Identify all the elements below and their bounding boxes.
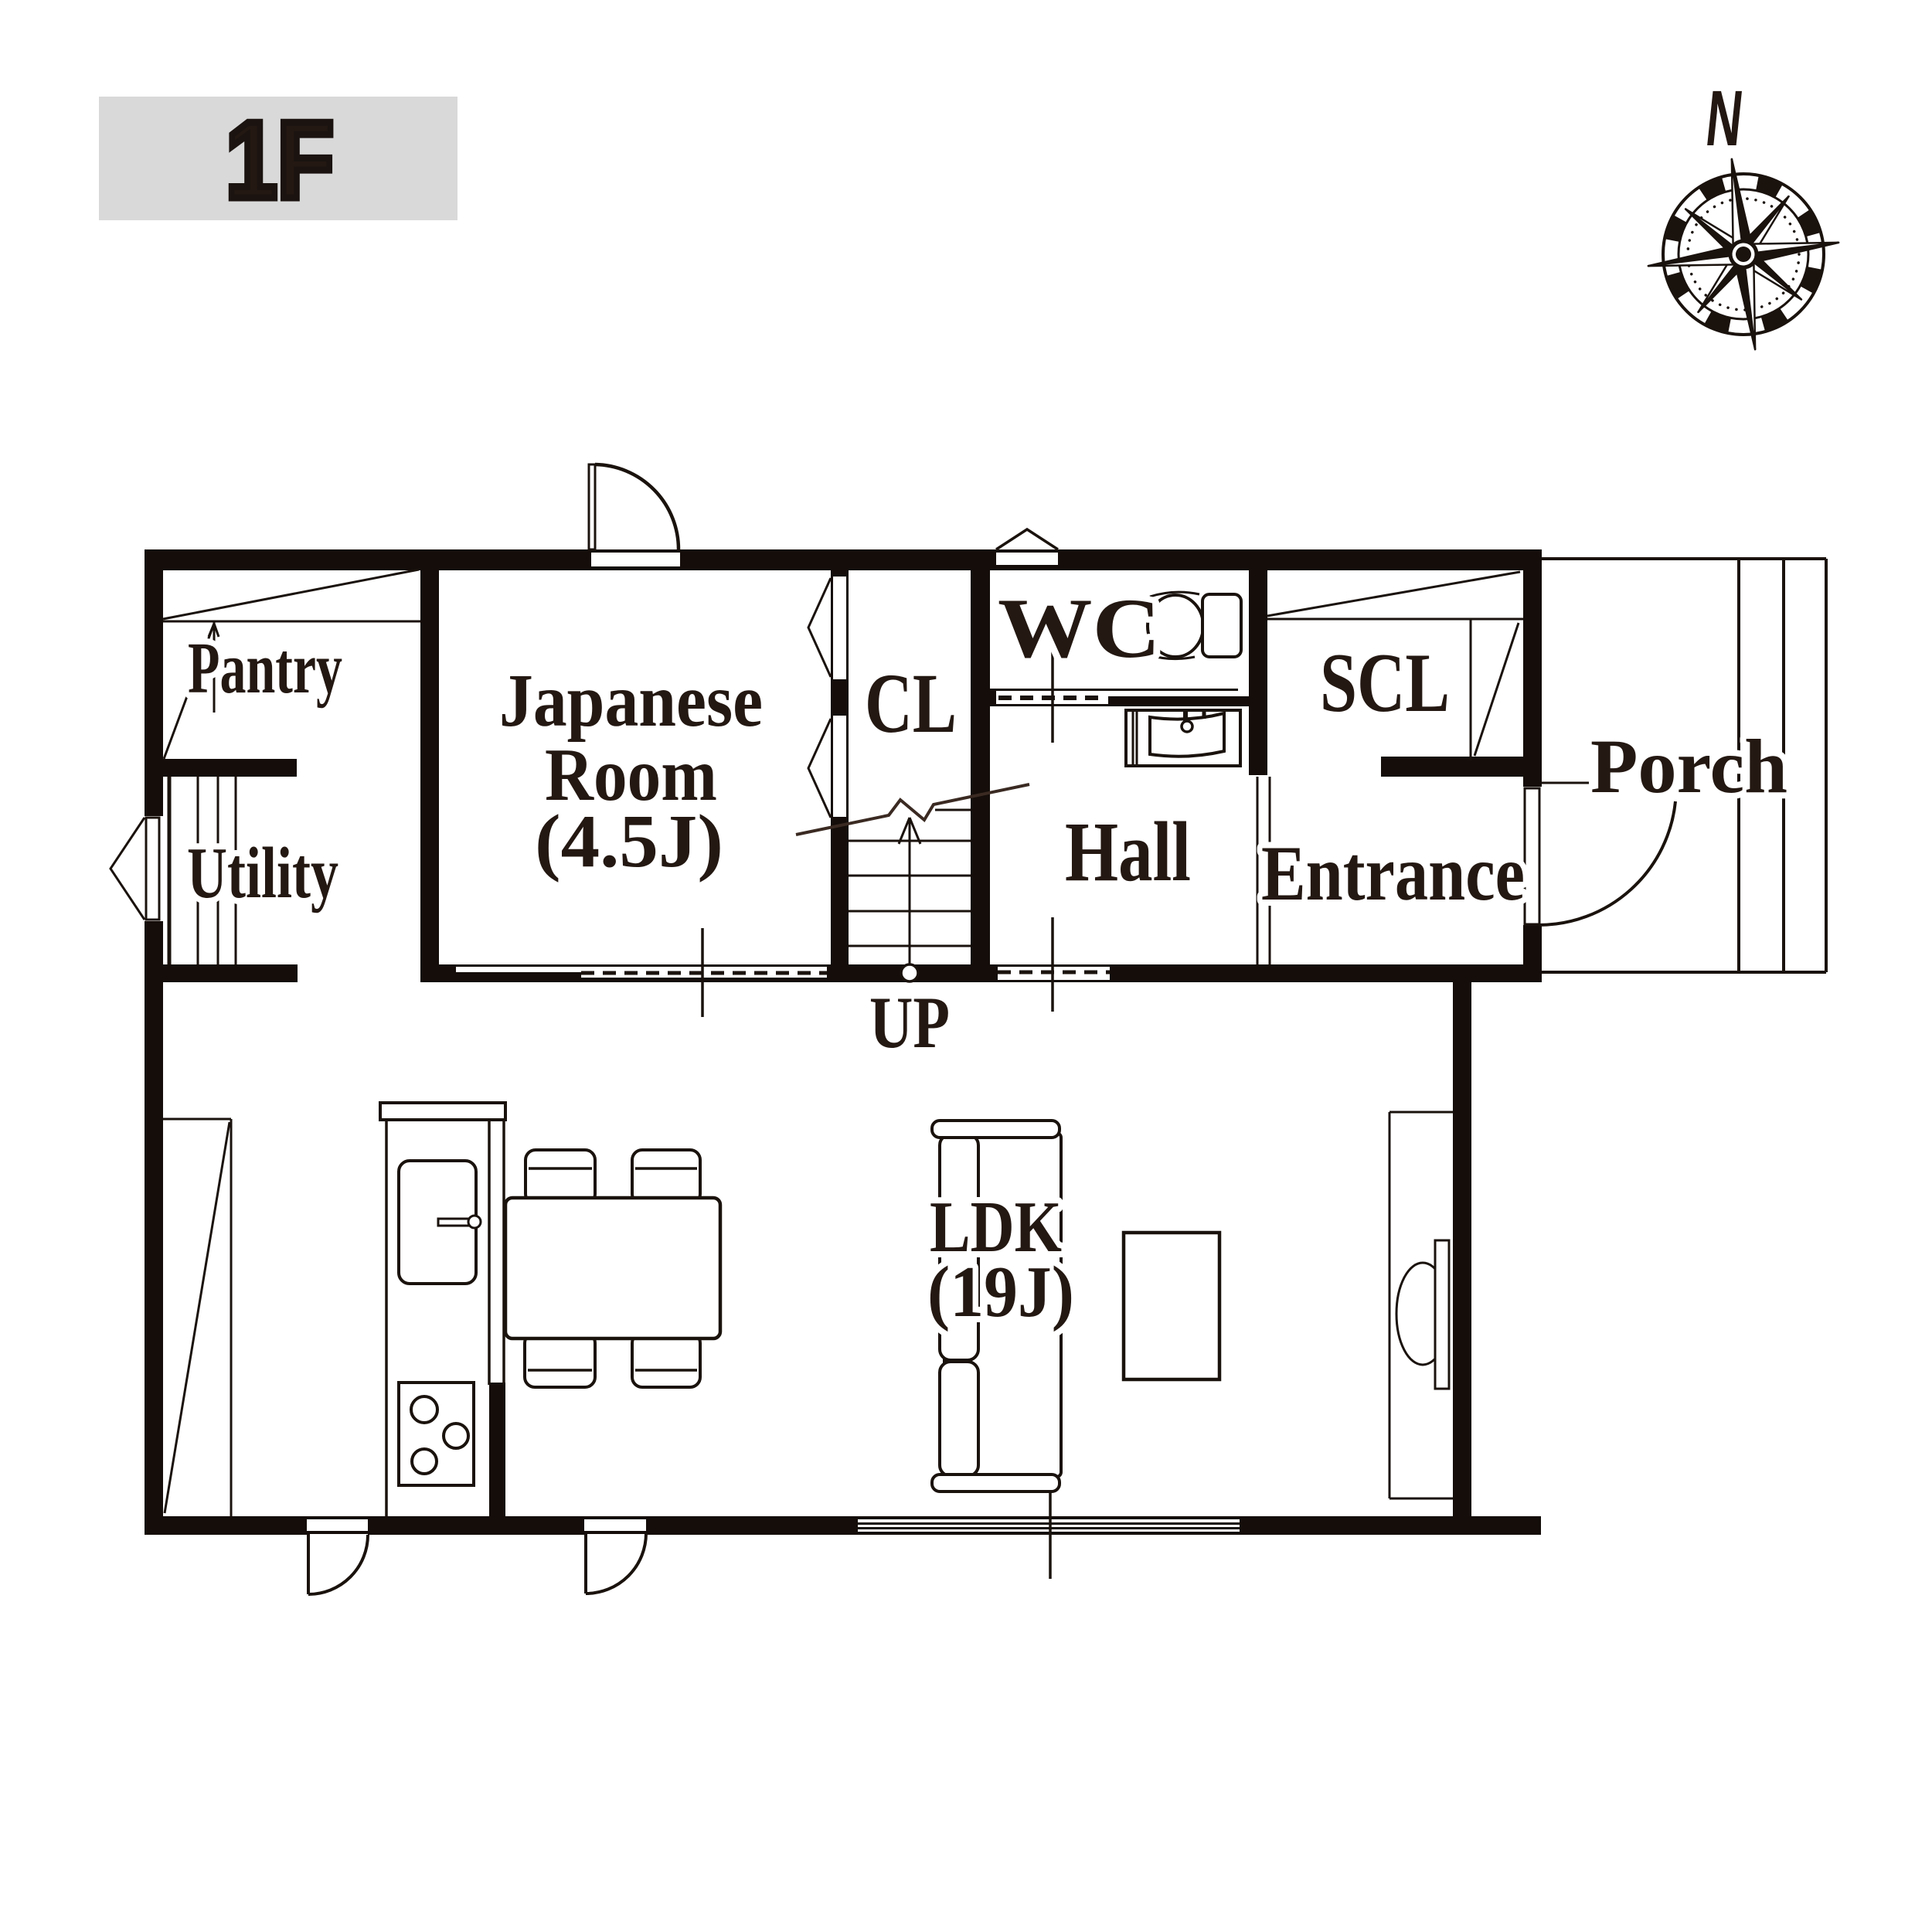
svg-text:Entrance: Entrance bbox=[1261, 830, 1525, 917]
svg-text:CL: CL bbox=[865, 656, 957, 750]
svg-text:UP: UP bbox=[869, 981, 950, 1063]
svg-text:1F: 1F bbox=[226, 99, 334, 222]
svg-text:SCL: SCL bbox=[1320, 636, 1450, 730]
svg-text:(19J): (19J) bbox=[927, 1252, 1074, 1332]
svg-text:(4.5J): (4.5J) bbox=[535, 800, 723, 883]
svg-text:Pantry: Pantry bbox=[188, 628, 342, 709]
svg-text:Porch: Porch bbox=[1590, 723, 1787, 809]
svg-text:Japanese: Japanese bbox=[499, 659, 763, 743]
svg-text:Hall: Hall bbox=[1065, 804, 1191, 899]
svg-text:Utility: Utility bbox=[187, 833, 338, 913]
svg-text:WC: WC bbox=[998, 581, 1161, 675]
